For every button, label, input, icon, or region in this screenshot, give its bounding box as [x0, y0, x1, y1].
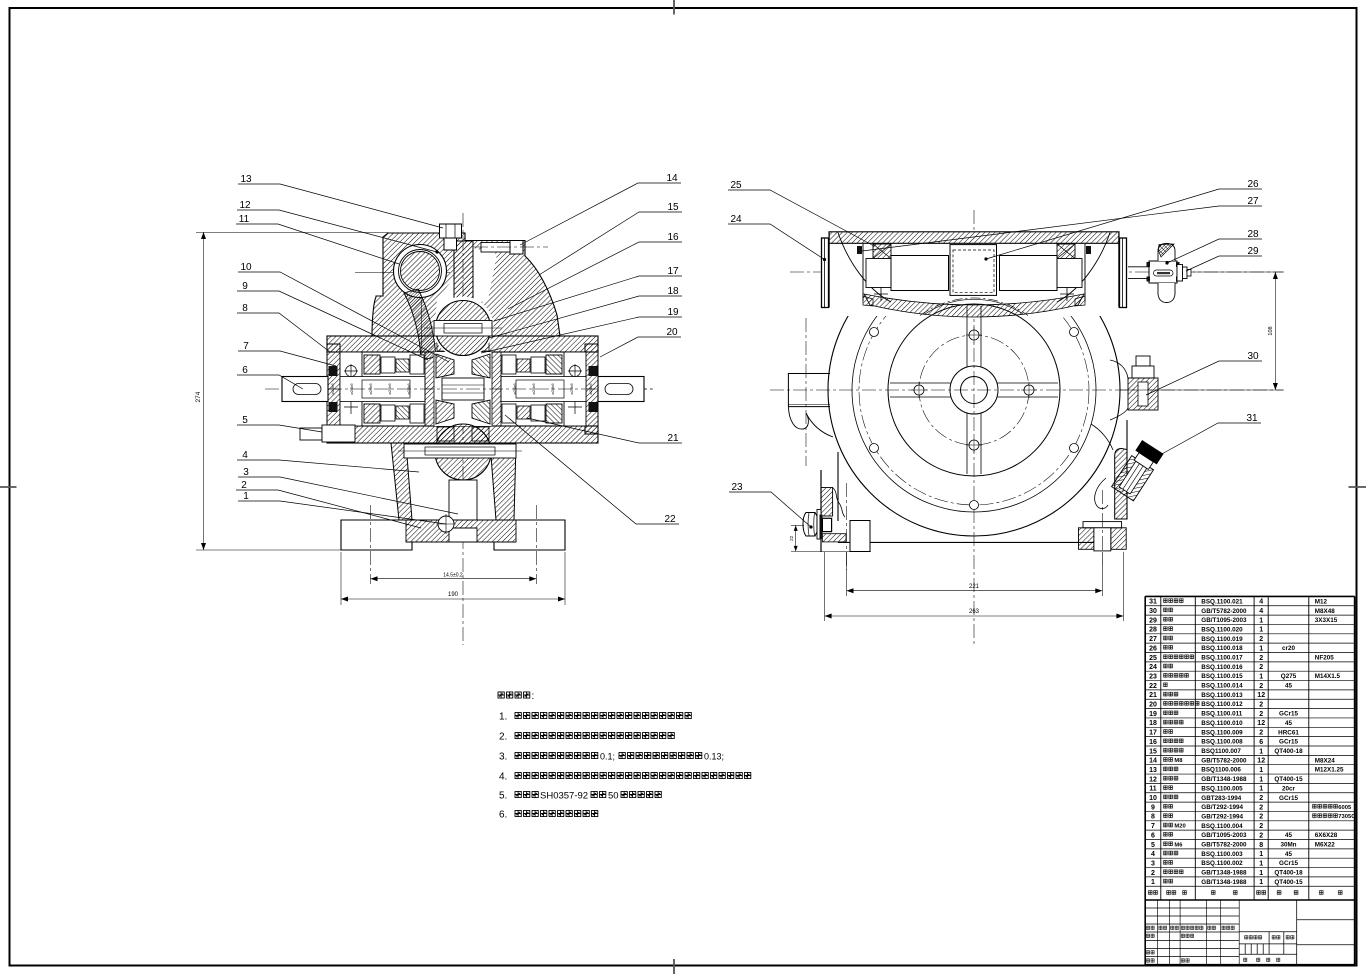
svg-text:25: 25	[730, 180, 742, 191]
svg-text:6: 6	[1151, 832, 1155, 839]
svg-text:ø25k6: ø25k6	[330, 383, 335, 395]
svg-text:2: 2	[1259, 683, 1263, 690]
svg-text:BSQ.1100.021: BSQ.1100.021	[1201, 598, 1243, 605]
svg-text:4: 4	[242, 450, 248, 461]
svg-text:22: 22	[789, 535, 794, 541]
svg-text:BSQ.1100.005: BSQ.1100.005	[1201, 785, 1243, 792]
svg-text:GCr15: GCr15	[1279, 795, 1298, 802]
svg-text:12: 12	[1257, 720, 1265, 727]
svg-text:1: 1	[1259, 861, 1263, 868]
svg-text:GCr15: GCr15	[1279, 711, 1298, 718]
svg-text:BSQ.1100.017: BSQ.1100.017	[1201, 655, 1243, 662]
svg-text:1: 1	[1259, 767, 1263, 774]
svg-text:7: 7	[243, 341, 249, 352]
svg-text:QT400-18: QT400-18	[1274, 870, 1303, 877]
svg-text:45: 45	[1285, 720, 1293, 727]
svg-text:BSQ.1100.010: BSQ.1100.010	[1201, 720, 1243, 727]
svg-text:SH0357-92: SH0357-92	[540, 791, 588, 802]
svg-text:29: 29	[1149, 617, 1157, 624]
svg-text:ø25k6: ø25k6	[588, 383, 593, 395]
svg-text:GB/T1348-1988: GB/T1348-1988	[1201, 870, 1247, 877]
svg-text:12: 12	[239, 200, 251, 211]
svg-text:BSQ.1100.012: BSQ.1100.012	[1201, 701, 1243, 708]
svg-text:M8X48: M8X48	[1315, 608, 1335, 615]
svg-text:2: 2	[1259, 795, 1263, 802]
svg-text:BSQ.1100.016: BSQ.1100.016	[1201, 664, 1243, 671]
svg-text:11: 11	[239, 214, 250, 225]
svg-text:13: 13	[1149, 767, 1157, 774]
svg-text:1: 1	[1259, 748, 1263, 755]
svg-text:BSQ.1100.014: BSQ.1100.014	[1201, 683, 1243, 690]
svg-text:26: 26	[1149, 645, 1157, 652]
svg-text:4.: 4.	[499, 772, 507, 783]
svg-text:16: 16	[667, 232, 679, 243]
svg-text:19: 19	[667, 307, 679, 318]
svg-text:45: 45	[1285, 832, 1293, 839]
svg-text:7305C: 7305C	[1338, 814, 1356, 820]
svg-text:BSQ1100.006: BSQ1100.006	[1201, 767, 1241, 774]
svg-text:2: 2	[1259, 804, 1263, 811]
svg-text:0.1;: 0.1;	[600, 752, 615, 762]
svg-text:8: 8	[1151, 814, 1155, 821]
svg-text:2: 2	[1259, 730, 1263, 737]
svg-text:1: 1	[1259, 851, 1263, 858]
svg-text:28: 28	[1247, 229, 1259, 240]
svg-text:3: 3	[243, 467, 249, 478]
svg-text:8: 8	[1259, 842, 1263, 849]
svg-text:15: 15	[667, 202, 679, 213]
svg-text:2.: 2.	[499, 732, 507, 743]
svg-text:25: 25	[1149, 655, 1157, 662]
svg-text:2: 2	[1259, 664, 1263, 671]
svg-text:31: 31	[1246, 413, 1258, 424]
svg-text:ø25k6: ø25k6	[387, 383, 392, 395]
svg-text:M20: M20	[1174, 824, 1185, 830]
svg-text:28: 28	[1149, 627, 1157, 634]
svg-text:ø25k6: ø25k6	[550, 383, 555, 395]
svg-text:2: 2	[1259, 711, 1263, 718]
svg-text:19: 19	[1149, 711, 1157, 718]
svg-text:7: 7	[1151, 823, 1155, 830]
svg-text:45: 45	[1285, 683, 1293, 690]
svg-text:27: 27	[1149, 636, 1157, 643]
svg-text:50: 50	[608, 791, 619, 802]
svg-text:1: 1	[1259, 776, 1263, 783]
svg-text:QT400-18: QT400-18	[1274, 748, 1303, 755]
svg-text:ø25k6: ø25k6	[368, 383, 373, 395]
svg-text:10: 10	[1149, 795, 1157, 802]
svg-text:1: 1	[1259, 870, 1263, 877]
svg-text:10: 10	[240, 262, 252, 273]
svg-text:190: 190	[448, 592, 459, 598]
svg-text:1: 1	[1259, 627, 1263, 634]
svg-text:BSQ.1100.002: BSQ.1100.002	[1201, 860, 1243, 867]
svg-text:GB/T5782-2000: GB/T5782-2000	[1201, 608, 1247, 615]
svg-text:29: 29	[1247, 246, 1259, 257]
svg-text:21: 21	[667, 433, 679, 444]
svg-text:17: 17	[1149, 730, 1157, 737]
svg-text:ø25k6: ø25k6	[349, 383, 354, 395]
svg-text:20: 20	[666, 327, 678, 338]
svg-text:6.: 6.	[499, 810, 507, 821]
svg-text:15: 15	[1149, 748, 1157, 755]
svg-text:1: 1	[1259, 617, 1263, 624]
svg-text:GBT283-1994: GBT283-1994	[1201, 795, 1241, 802]
svg-text:BSQ.1100.004: BSQ.1100.004	[1201, 823, 1243, 830]
svg-text:24: 24	[1149, 664, 1157, 671]
svg-text:20: 20	[1149, 702, 1157, 709]
svg-text:1.: 1.	[499, 712, 507, 723]
svg-text:BSQ.1100.008: BSQ.1100.008	[1201, 739, 1243, 746]
svg-text:ø25k6: ø25k6	[569, 383, 574, 395]
svg-text:BSQ1100.007: BSQ1100.007	[1201, 748, 1241, 755]
svg-text:4: 4	[1259, 599, 1263, 606]
svg-text:221: 221	[969, 584, 980, 590]
svg-text:6X6X28: 6X6X28	[1315, 832, 1338, 839]
svg-text:BSQ.1100.003: BSQ.1100.003	[1201, 851, 1243, 858]
svg-text:GB/T5782-2000: GB/T5782-2000	[1201, 842, 1247, 849]
svg-text:2: 2	[1259, 832, 1263, 839]
svg-text:0.13;: 0.13;	[704, 752, 724, 762]
svg-text:263: 263	[969, 609, 980, 615]
svg-text:21: 21	[1149, 692, 1157, 699]
svg-text:26: 26	[1247, 179, 1259, 190]
svg-text:1: 1	[243, 491, 249, 502]
svg-text:1: 1	[1259, 645, 1263, 652]
svg-text:22: 22	[1149, 683, 1157, 690]
svg-text:17: 17	[667, 266, 679, 277]
svg-text:27: 27	[1247, 196, 1259, 207]
svg-text:BSQ.1100.020: BSQ.1100.020	[1201, 626, 1243, 633]
svg-text:BSQ.1100.013: BSQ.1100.013	[1201, 692, 1243, 699]
svg-text:5: 5	[242, 415, 248, 426]
svg-text:14.5±0.2: 14.5±0.2	[443, 573, 463, 579]
svg-text:BSQ.1100.009: BSQ.1100.009	[1201, 729, 1243, 736]
svg-text:23: 23	[1149, 674, 1157, 681]
svg-text:HRC61: HRC61	[1278, 729, 1299, 736]
svg-text:12: 12	[1257, 692, 1265, 699]
svg-text:30Mn: 30Mn	[1280, 842, 1296, 849]
svg-text:GB/T292-1994: GB/T292-1994	[1201, 813, 1243, 820]
svg-text:M8: M8	[1174, 758, 1183, 764]
svg-text::: :	[532, 691, 535, 702]
svg-text:2: 2	[1151, 870, 1155, 877]
svg-text:ø25k6: ø25k6	[406, 383, 411, 395]
svg-text:5: 5	[1151, 842, 1155, 849]
svg-text:BSQ.1100.018: BSQ.1100.018	[1201, 645, 1243, 652]
svg-text:M12: M12	[1315, 598, 1328, 605]
svg-text:QT400-15: QT400-15	[1274, 776, 1303, 783]
svg-text:GCr15: GCr15	[1279, 860, 1298, 867]
svg-text:31: 31	[1149, 599, 1157, 606]
svg-text:2: 2	[1259, 655, 1263, 662]
svg-text:Q275: Q275	[1281, 673, 1297, 680]
svg-text:1: 1	[1151, 879, 1155, 886]
svg-text:M6X22: M6X22	[1315, 842, 1335, 849]
svg-text:2: 2	[1259, 814, 1263, 821]
svg-text:ø25k6: ø25k6	[531, 383, 536, 395]
svg-text:GB/T5782-2000: GB/T5782-2000	[1201, 757, 1247, 764]
svg-text:2: 2	[1259, 636, 1263, 643]
svg-text:cr20: cr20	[1282, 645, 1295, 652]
svg-text:3.: 3.	[499, 752, 507, 763]
svg-text:GB/T1348-1988: GB/T1348-1988	[1201, 776, 1247, 783]
svg-text:24: 24	[730, 214, 742, 225]
svg-text:9: 9	[242, 281, 248, 292]
svg-text:18: 18	[1149, 720, 1157, 727]
svg-text:30: 30	[1247, 351, 1259, 362]
svg-text:4: 4	[1151, 851, 1155, 858]
svg-text:QT400-15: QT400-15	[1274, 879, 1303, 886]
svg-text:8: 8	[242, 303, 248, 314]
svg-text:16: 16	[1149, 739, 1157, 746]
svg-text:12: 12	[1149, 776, 1157, 783]
svg-text:14: 14	[666, 173, 678, 184]
svg-text:BSQ.1100.015: BSQ.1100.015	[1201, 673, 1243, 680]
svg-text:M6: M6	[1174, 842, 1183, 848]
svg-text:5.: 5.	[499, 791, 507, 802]
svg-text:BSQ.1100.011: BSQ.1100.011	[1201, 711, 1242, 718]
svg-text:GB/T1095-2003: GB/T1095-2003	[1201, 832, 1247, 839]
svg-text:4: 4	[1259, 608, 1263, 615]
svg-text:3: 3	[1151, 861, 1155, 868]
svg-text:30: 30	[1149, 608, 1157, 615]
svg-text:1: 1	[1259, 879, 1263, 886]
svg-text:9: 9	[1151, 804, 1155, 811]
svg-text:6005: 6005	[1338, 805, 1352, 811]
svg-text:ø25k6: ø25k6	[512, 383, 517, 395]
svg-text:14: 14	[1149, 758, 1157, 765]
svg-text:274: 274	[195, 391, 202, 402]
svg-text:6: 6	[1259, 739, 1263, 746]
svg-text:M12X1.25: M12X1.25	[1315, 767, 1344, 774]
svg-text:BSQ.1100.019: BSQ.1100.019	[1201, 636, 1243, 643]
svg-text:2: 2	[1259, 702, 1263, 709]
svg-text:1: 1	[1259, 674, 1263, 681]
svg-text:GCr15: GCr15	[1279, 739, 1298, 746]
svg-text:13: 13	[240, 174, 252, 185]
svg-text:3X3X15: 3X3X15	[1315, 617, 1338, 624]
svg-text:23: 23	[731, 482, 743, 493]
svg-text:18: 18	[667, 286, 679, 297]
svg-text:20cr: 20cr	[1282, 785, 1296, 792]
svg-text:2: 2	[1259, 823, 1263, 830]
svg-text:M14X1.5: M14X1.5	[1315, 673, 1341, 680]
svg-text:12: 12	[1257, 758, 1265, 765]
svg-text:M8X24: M8X24	[1315, 757, 1335, 764]
svg-text:NF205: NF205	[1315, 655, 1334, 662]
svg-text:GB/T292-1994: GB/T292-1994	[1201, 804, 1243, 811]
svg-text:2: 2	[241, 480, 247, 491]
svg-text:GB/T1348-1988: GB/T1348-1988	[1201, 879, 1247, 886]
svg-text:6: 6	[242, 365, 248, 376]
svg-text:1: 1	[1259, 786, 1263, 793]
svg-text:108: 108	[1268, 326, 1274, 335]
svg-text:GB/T1095-2003: GB/T1095-2003	[1201, 617, 1247, 624]
svg-text:45: 45	[1285, 851, 1293, 858]
svg-text:22: 22	[664, 514, 676, 525]
svg-text:11: 11	[1149, 786, 1157, 793]
